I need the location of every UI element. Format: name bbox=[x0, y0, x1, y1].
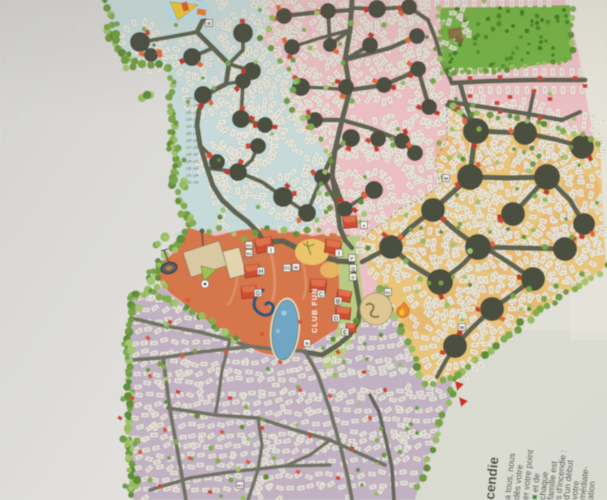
svg-text:R1: R1 bbox=[246, 243, 252, 248]
svg-text:M: M bbox=[444, 176, 448, 182]
svg-text:131: 131 bbox=[186, 173, 192, 178]
svg-text:D1: D1 bbox=[284, 266, 290, 271]
svg-text:125: 125 bbox=[186, 131, 192, 136]
svg-text:R1: R1 bbox=[237, 483, 243, 488]
svg-text:A: A bbox=[363, 223, 366, 228]
svg-text:124: 124 bbox=[186, 124, 192, 129]
svg-text:127: 127 bbox=[186, 145, 192, 150]
svg-text:R1: R1 bbox=[385, 290, 391, 295]
svg-text:D: D bbox=[351, 275, 355, 281]
svg-text:143: 143 bbox=[193, 166, 199, 171]
svg-text:144: 144 bbox=[193, 173, 199, 178]
svg-text:CLUB FUN: CLUB FUN bbox=[312, 288, 319, 333]
svg-text:130: 130 bbox=[186, 166, 192, 171]
svg-text:D: D bbox=[334, 316, 339, 322]
svg-text:G: G bbox=[256, 291, 261, 297]
svg-text:142: 142 bbox=[193, 159, 199, 164]
svg-text:126: 126 bbox=[186, 138, 192, 143]
svg-text:H: H bbox=[259, 269, 263, 275]
svg-text:B: B bbox=[336, 299, 341, 305]
svg-text:B1: B1 bbox=[246, 251, 252, 256]
svg-text:128: 128 bbox=[186, 152, 192, 157]
svg-text:ation: ation bbox=[585, 480, 597, 500]
svg-text:N: N bbox=[294, 265, 298, 271]
svg-text:C: C bbox=[319, 292, 324, 298]
svg-text:E: E bbox=[343, 330, 347, 336]
svg-text:N: N bbox=[305, 341, 309, 347]
svg-text:141: 141 bbox=[193, 152, 199, 157]
svg-text:145: 145 bbox=[193, 180, 199, 185]
svg-text:M: M bbox=[460, 325, 464, 331]
svg-text:Q: Q bbox=[351, 266, 355, 272]
